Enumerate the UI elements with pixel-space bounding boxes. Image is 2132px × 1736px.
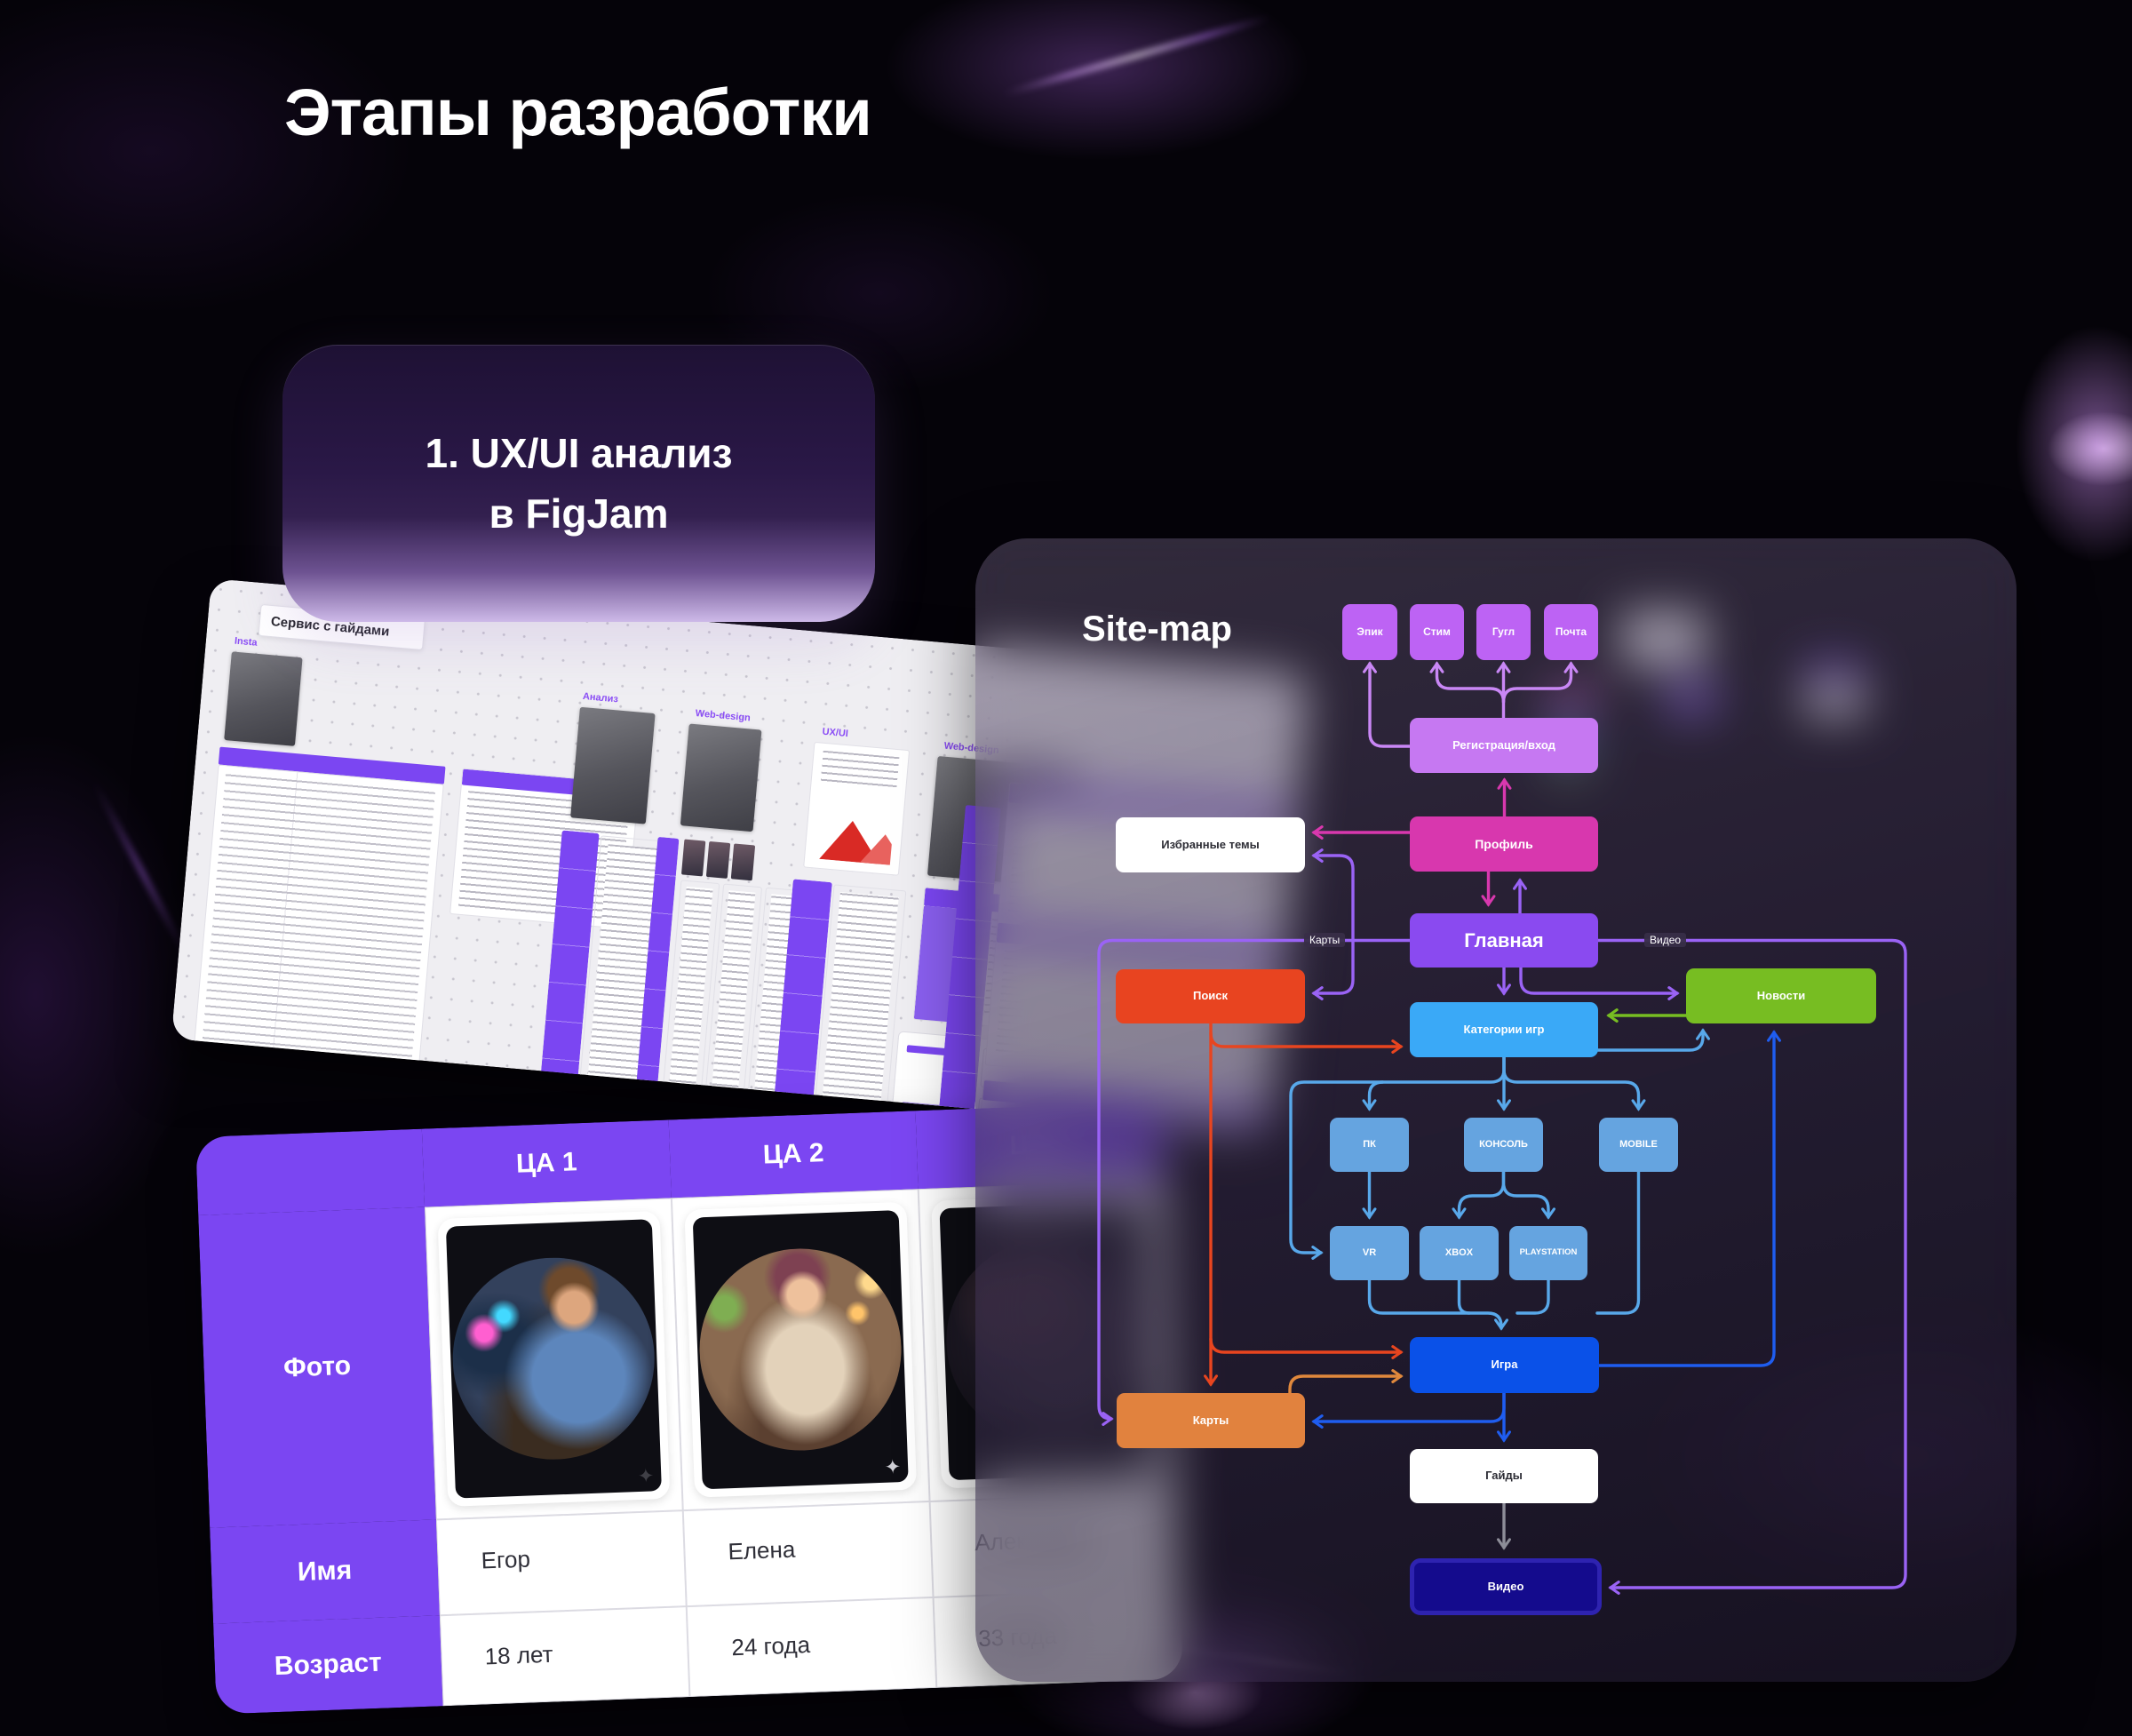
sitemap-connectors: [975, 538, 2017, 1682]
sitemap-node-mobile: MOBILE: [1599, 1118, 1678, 1172]
sitemap-node-categories: Категории игр: [1410, 1002, 1598, 1057]
figjam-red-chart: [814, 809, 895, 865]
table-row-label-name: Имя: [210, 1519, 440, 1623]
sitemap-node-steam: Стим: [1410, 604, 1464, 660]
figjam-screenshot-thumbnail: [570, 707, 656, 824]
sitemap-node-console: КОНСОЛЬ: [1464, 1118, 1543, 1172]
persona-age: 24 года: [687, 1597, 937, 1697]
table-row-label-age: Возраст: [213, 1615, 443, 1714]
persona-photo-2: [696, 1245, 905, 1454]
figjam-screenshot-thumbnail: [680, 723, 762, 832]
sitemap-node-video: Видео: [1410, 1558, 1602, 1615]
persona-photo-cell: ✦: [425, 1198, 683, 1519]
sitemap-node-pc: ПК: [1330, 1118, 1409, 1172]
sparkle-icon: ✦: [637, 1464, 654, 1488]
persona-photo-cell: ✦: [672, 1189, 930, 1510]
sitemap-panel: Site-map: [975, 538, 2017, 1682]
step-card-line-2: в FigJam: [282, 490, 875, 538]
sitemap-node-game: Игра: [1410, 1337, 1599, 1393]
sitemap-node-search: Поиск: [1116, 969, 1305, 1023]
sitemap-node-epic: Эпик: [1342, 604, 1397, 660]
sitemap-node-vr: VR: [1330, 1226, 1409, 1280]
table-corner-cell: [195, 1129, 425, 1215]
figjam-chart-card: [803, 742, 910, 876]
sitemap-node-profile: Профиль: [1410, 816, 1598, 872]
persona-photo-1: [449, 1254, 659, 1464]
figjam-photo-row: [681, 840, 755, 881]
figjam-section-title: Insta: [234, 636, 258, 649]
sparkle-icon: ✦: [884, 1455, 901, 1479]
sitemap-line-label-video: Видео: [1644, 933, 1686, 947]
table-row-label-photo: Фото: [198, 1207, 436, 1528]
slide: Этапы разработки Сервис с гайдами Insta …: [0, 0, 2132, 1736]
persona-name: Елена: [683, 1501, 934, 1606]
sitemap-node-favorites: Избранные темы: [1116, 817, 1305, 872]
step-card-line-1: 1. UX/UI анализ: [282, 429, 875, 477]
figjam-section-title: Анализ: [582, 691, 618, 705]
sitemap-node-home: Главная: [1410, 913, 1598, 968]
page-title: Этапы разработки: [284, 75, 871, 150]
table-header-ca1: ЦА 1: [422, 1119, 672, 1206]
sitemap-node-playstation: PLAYSTATION: [1509, 1226, 1587, 1280]
step-card: 1. UX/UI анализ в FigJam: [282, 345, 875, 622]
sitemap-node-guides: Гайды: [1410, 1449, 1598, 1503]
figjam-section-title: Web-design: [695, 708, 751, 723]
figjam-screenshot-thumbnail: [224, 651, 302, 746]
sitemap-node-xbox: XBOX: [1420, 1226, 1499, 1280]
sitemap-node-news: Новости: [1686, 968, 1876, 1023]
figjam-section-title: UX/UI: [822, 727, 848, 740]
persona-name: Егор: [436, 1510, 687, 1615]
persona-age: 18 лет: [440, 1606, 690, 1706]
table-header-ca2: ЦА 2: [669, 1111, 919, 1198]
sitemap-line-label-maps: Карты: [1304, 933, 1345, 947]
sitemap-node-registration: Регистрация/вход: [1410, 718, 1598, 773]
sitemap-node-google: Гугл: [1476, 604, 1531, 660]
sitemap-node-maps: Карты: [1117, 1393, 1305, 1448]
sitemap-node-mail: Почта: [1544, 604, 1598, 660]
